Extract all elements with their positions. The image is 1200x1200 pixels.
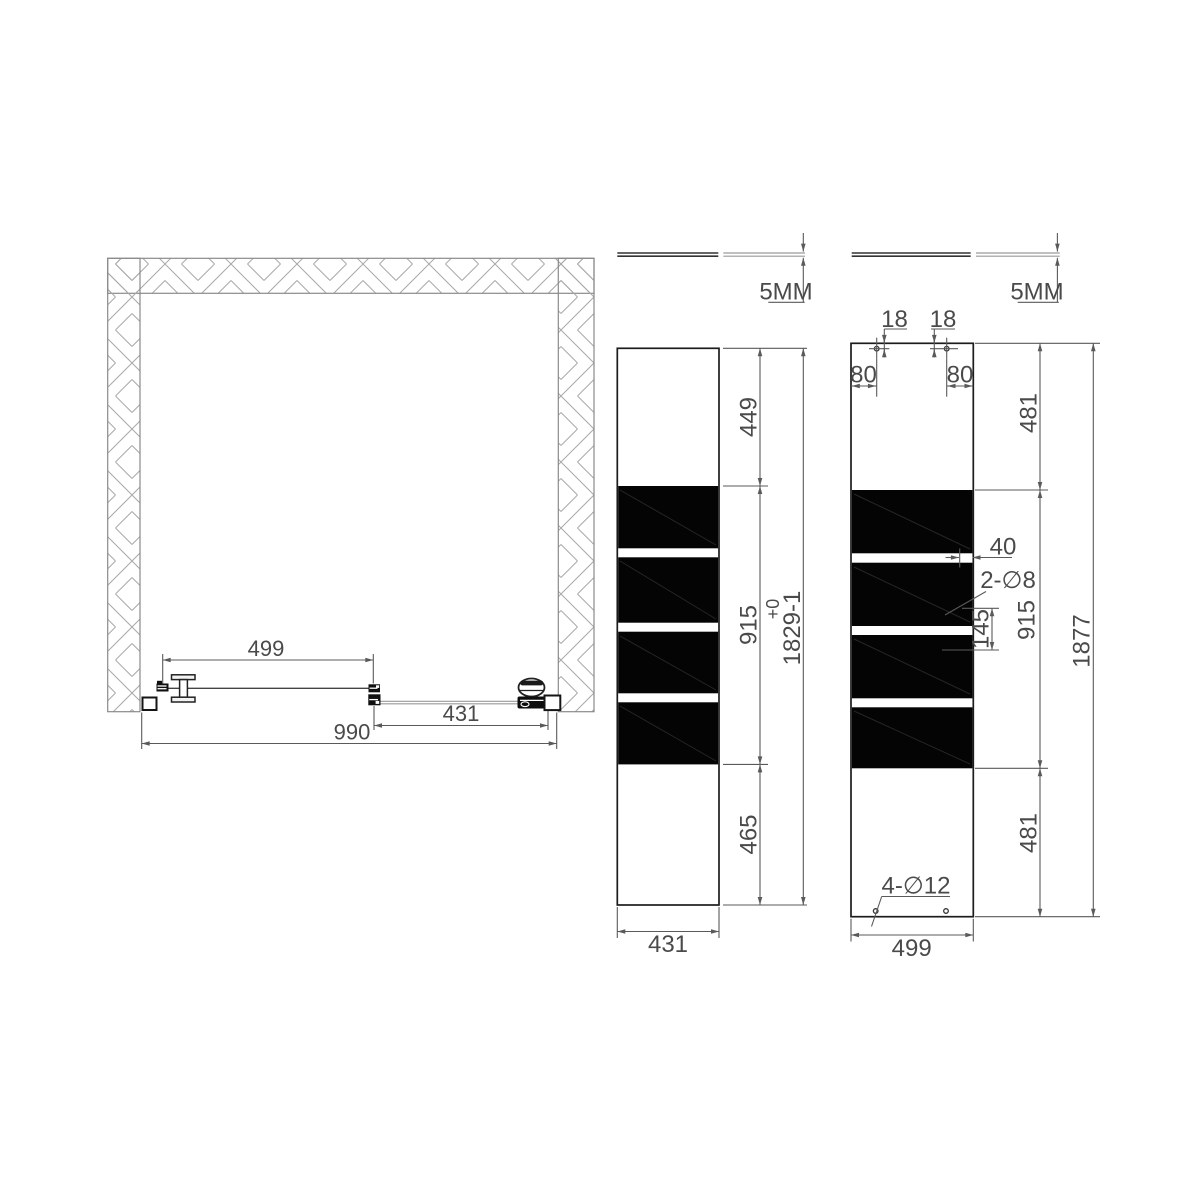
door-elevation: 5MM 449 915 465 [617,233,812,958]
panel-dim-80-left-label: 80 [850,362,877,389]
panel-dim-width: 499 [851,919,973,962]
panel-dim-18-left-label: 18 [881,306,908,333]
door-chain-dims: 449 915 465 [736,348,763,905]
panel-dim-18-right-label: 18 [930,306,957,333]
door-dim-5mm-label: 5MM [759,279,812,306]
door-dim-465-label: 465 [736,814,763,854]
wall-right [558,258,594,711]
wall-profile-block [143,698,157,711]
door-dim-915-label: 915 [736,605,763,645]
technical-drawing: 499 431 990 5MM [0,0,1200,1200]
panel-dim-145-label: 145 [968,609,995,649]
panel-dim-40-label: 40 [990,534,1017,561]
door-dim-5mm: 5MM [759,233,812,306]
door-dim-449-label: 449 [736,397,763,437]
door-dim-height-label: 1829-1 [779,591,806,666]
mount-holes-label: 4-∅12 [882,873,951,900]
fixed-glass-panel [851,343,973,916]
fixed-panel-elevation: 5MM 18 [850,233,1100,962]
drawing-canvas: 499 431 990 5MM [0,0,1200,1200]
hinge-assembly [518,679,561,711]
panel-dim-915-label: 915 [1014,600,1041,640]
plan-dim-431-label: 431 [443,701,480,726]
door-dim-height-tol-label: +0 [763,599,783,620]
plan-view: 499 431 990 [108,258,594,749]
panel-dim-width-label: 499 [892,935,932,962]
mount-hole-bottom-right [944,909,949,914]
handle-holes-label: 2-∅8 [980,567,1036,594]
panel-dim-481-bottom-label: 481 [1016,813,1043,853]
panel-dim-1877-label: 1877 [1069,614,1096,667]
panel-dim-481-top-label: 481 [1016,393,1043,433]
wall-top [108,258,594,293]
door-dim-width-label: 431 [648,931,688,958]
panel-chain-dims: 481 915 481 [1014,343,1043,916]
door-glass-panel [617,348,719,905]
wall-clamp [157,684,169,692]
wall-left [108,258,140,711]
middle-bracket [368,684,380,705]
plan-dim-990-label: 990 [334,720,371,745]
door-dim-width: 431 [617,907,719,958]
panel-dim-5mm: 5MM [1010,233,1063,306]
wall-clamp-tab [157,681,162,684]
plan-dim-990: 990 [142,713,557,750]
panel-dim-80-right-label: 80 [947,362,974,389]
door-overall-height: 1829-1 +0 [763,348,806,905]
plan-dim-499-label: 499 [248,636,285,661]
panel-dim-5mm-label: 5MM [1010,279,1063,306]
panel-overall-height: 1877 [1069,343,1096,916]
